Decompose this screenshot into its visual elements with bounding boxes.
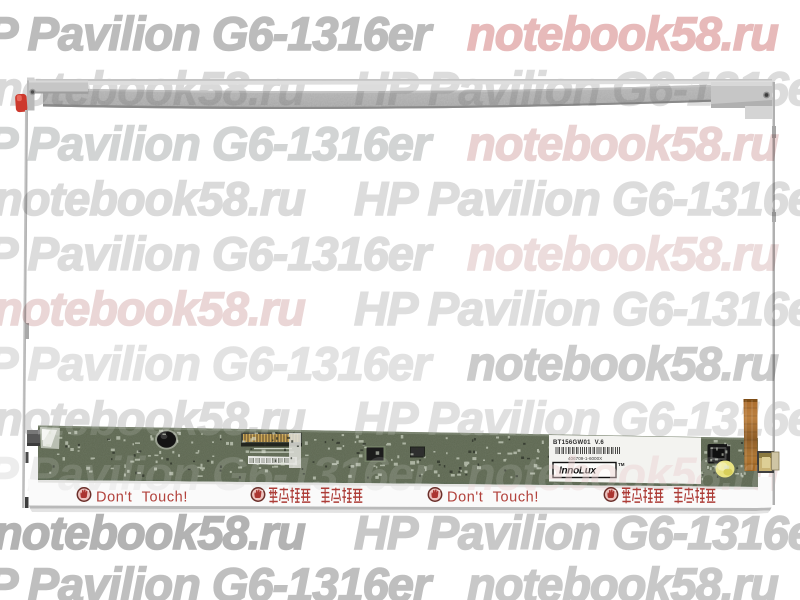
svg-text:notebook58.ru: notebook58.ru: [0, 392, 305, 445]
svg-text:HP Pavilion G6-1316er: HP Pavilion G6-1316er: [354, 392, 800, 445]
svg-text:Don't Touch!: Don't Touch!: [447, 490, 539, 506]
svg-text:Don't Touch!: Don't Touch!: [96, 490, 188, 506]
